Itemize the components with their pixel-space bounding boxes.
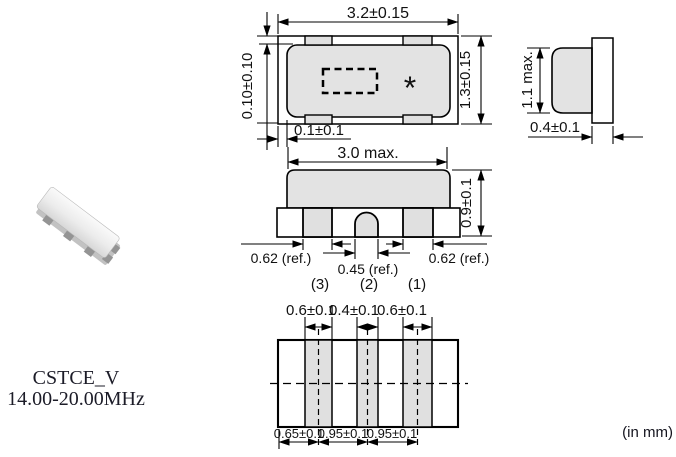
front-view-terminals (303, 208, 433, 237)
dim-label-3-0-max: 3.0 max. (337, 145, 398, 162)
part-label: CSTCE_V 14.00-20.00MHz (0, 368, 152, 410)
units-note: (in mm) (595, 424, 673, 441)
dim-label-0-9: 0.9±0.1 (458, 178, 475, 228)
product-photo (32, 186, 125, 268)
part-frequency-range: 14.00-20.00MHz (0, 389, 152, 410)
terminal-pad-2 (355, 213, 378, 237)
dim-label-0-95-a: 0.95±0.1 (318, 426, 369, 441)
dim-label-0-95-b: 0.95±0.1 (367, 426, 418, 441)
dim-0-1: 0.1±0.1 (257, 120, 351, 147)
dim-0-10: 0.10±0.10 (239, 12, 293, 150)
electrode-width-dims: 0.6±0.1 0.4±0.1 0.6±0.1 (286, 302, 432, 339)
dim-0-4-side: 0.4±0.1 (528, 119, 643, 144)
resonator-body-side (552, 48, 592, 113)
side-view: 1.1 max. 0.4±0.1 (519, 38, 643, 144)
dim-label-1-1-max: 1.1 max. (519, 51, 536, 109)
electrode-pitch-dims: 0.65±0.1 0.95±0.1 0.95±0.1 (274, 426, 418, 449)
terminal-number-1: (1) (408, 276, 426, 293)
resonator-body-top (287, 45, 450, 117)
cap-front (287, 170, 450, 208)
dim-0-9: 0.9±0.1 (452, 170, 492, 236)
terminal-pad-3 (303, 208, 332, 237)
dim-3-0-max: 3.0 max. (288, 145, 447, 169)
part-name: CSTCE_V (0, 368, 152, 389)
dim-label-1-3: 1.3±0.15 (457, 51, 474, 109)
terminal-number-2: (2) (360, 276, 378, 293)
terminal-pad-1 (403, 208, 433, 237)
dim-label-3-2: 3.2±0.15 (347, 5, 409, 22)
bottom-view: 0.6±0.1 0.4±0.1 0.6±0.1 0.65±0.1 0.95±0.… (270, 302, 468, 449)
terminal-number-3: (3) (311, 276, 329, 293)
dim-label-0-65: 0.65±0.1 (274, 426, 325, 441)
datasheet-dimensions-page: * 3.2±0.15 1.3±0.15 0.10±0.10 (0, 0, 676, 457)
front-view: 3.0 max. 0.9±0.1 0.62 (ref.) 0.45 (ref.) (241, 145, 492, 293)
dim-label-0-62-right: 0.62 (ref.) (429, 250, 490, 266)
dim-1-3: 1.3±0.15 (457, 36, 492, 124)
dim-label-0-45: 0.45 (ref.) (338, 261, 399, 277)
dim-label-0-1: 0.1±0.1 (294, 122, 344, 139)
substrate-side (592, 38, 613, 123)
dim-0-45: 0.45 (ref.) (323, 239, 410, 277)
dim-label-0-62-left: 0.62 (ref.) (251, 250, 312, 266)
marking-asterisk: * (404, 70, 416, 106)
dim-3-2: 3.2±0.15 (278, 5, 458, 34)
dim-1-1-max: 1.1 max. (519, 48, 550, 113)
dim-label-0-4-b: 0.4±0.1 (329, 302, 379, 319)
top-view: * 3.2±0.15 1.3±0.15 0.10±0.10 (239, 5, 492, 150)
dim-label-0-6-c: 0.6±0.1 (377, 302, 427, 319)
dim-label-0-10: 0.10±0.10 (239, 53, 256, 120)
dim-label-0-4-side: 0.4±0.1 (530, 119, 580, 136)
